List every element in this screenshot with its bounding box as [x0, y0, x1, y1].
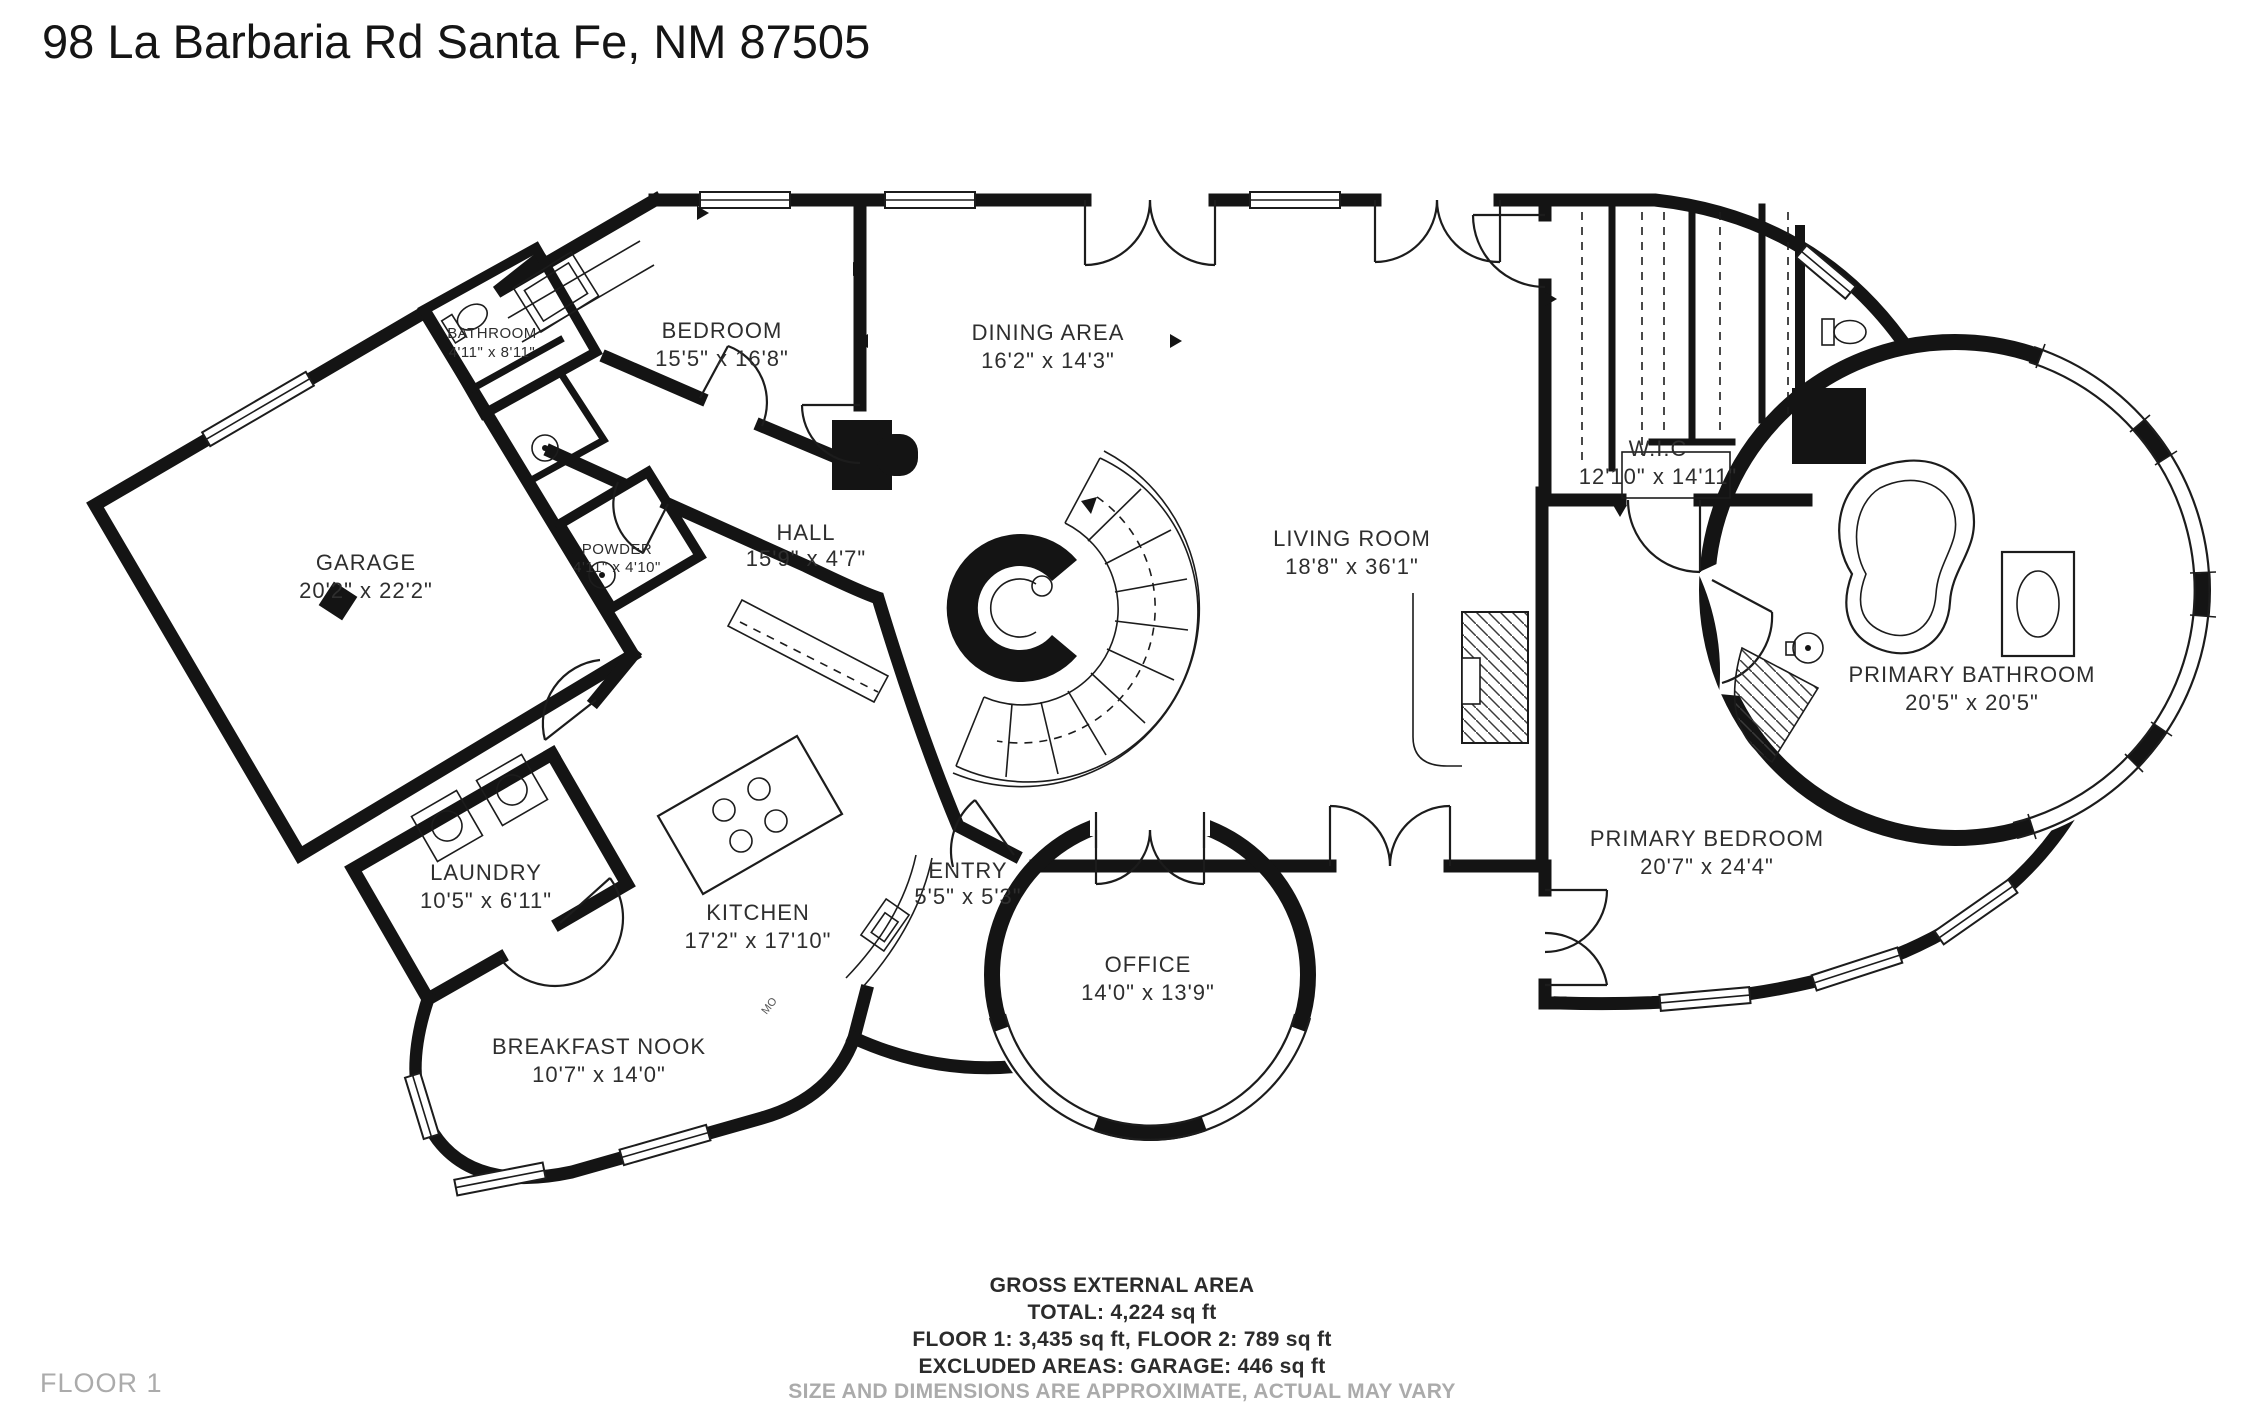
- room-dims-breakfast-nook: 10'7" x 14'0": [532, 1062, 666, 1087]
- room-dims-dining-area: 16'2" x 14'3": [981, 348, 1115, 373]
- room-dims-primary-bedroom: 20'7" x 24'4": [1640, 854, 1774, 879]
- room-label-dining-area: DINING AREA: [972, 320, 1125, 345]
- footer-heading: GROSS EXTERNAL AREA: [990, 1274, 1255, 1297]
- floorplan-canvas: BATHROOM 4'11" x 8'11" BEDROOM 15'5" x 1…: [0, 0, 2245, 1402]
- room-label-garage: GARAGE: [316, 550, 416, 575]
- room-label-primary-bedroom: PRIMARY BEDROOM: [1590, 826, 1824, 851]
- room-label-kitchen: KITCHEN: [706, 900, 810, 925]
- room-dims-hall: 15'9" x 4'7": [746, 546, 866, 571]
- room-dims-entry: 5'5" x 5'3": [914, 884, 1021, 909]
- room-label-living-room: LIVING ROOM: [1273, 526, 1431, 551]
- room-label-entry: ENTRY: [928, 858, 1007, 883]
- room-dims-wic: 12'10" x 14'11": [1579, 464, 1738, 489]
- room-dims-office: 14'0" x 13'9": [1081, 980, 1215, 1005]
- spiral-stair: [947, 451, 1200, 787]
- room-dims-bedroom: 15'5" x 16'8": [655, 346, 789, 371]
- footer-area: GROSS EXTERNAL AREA TOTAL: 4,224 sq ft F…: [788, 1274, 1455, 1402]
- room-label-powder: POWDER: [582, 541, 653, 558]
- room-dims-bathroom: 4'11" x 8'11": [449, 344, 536, 361]
- floor-label: FLOOR 1: [40, 1368, 163, 1398]
- footer-disclaimer: SIZE AND DIMENSIONS ARE APPROXIMATE, ACT…: [788, 1380, 1455, 1402]
- page-title: 98 La Barbaria Rd Santa Fe, NM 87505: [42, 15, 870, 68]
- room-dims-garage: 20'2" x 22'2": [299, 578, 433, 603]
- room-label-primary-bathroom: PRIMARY BATHROOM: [1848, 662, 2095, 687]
- room-dims-kitchen: 17'2" x 17'10": [685, 928, 832, 953]
- footer-floors: FLOOR 1: 3,435 sq ft, FLOOR 2: 789 sq ft: [912, 1328, 1331, 1351]
- room-label-hall: HALL: [776, 520, 835, 545]
- floorplan-page: BATHROOM 4'11" x 8'11" BEDROOM 15'5" x 1…: [0, 0, 2245, 1402]
- room-dims-primary-bathroom: 20'5" x 20'5": [1905, 690, 2039, 715]
- footer-excluded: EXCLUDED AREAS: GARAGE: 446 sq ft: [918, 1355, 1325, 1378]
- room-label-bathroom: BATHROOM: [447, 325, 537, 342]
- room-dims-powder: 4'11" x 4'10": [573, 559, 661, 576]
- room-label-laundry: LAUNDRY: [430, 860, 542, 885]
- room-dims-laundry: 10'5" x 6'11": [420, 888, 552, 913]
- room-label-breakfast-nook: BREAKFAST NOOK: [492, 1034, 706, 1059]
- room-dims-living-room: 18'8" x 36'1": [1285, 554, 1419, 579]
- room-label-wic: W.I.C: [1629, 436, 1688, 461]
- primary-bath-ring: [1707, 342, 2216, 839]
- counter-note: MO: [759, 995, 780, 1017]
- room-label-bedroom: BEDROOM: [662, 318, 783, 343]
- footer-total: TOTAL: 4,224 sq ft: [1028, 1301, 1217, 1324]
- room-label-office: OFFICE: [1105, 952, 1192, 977]
